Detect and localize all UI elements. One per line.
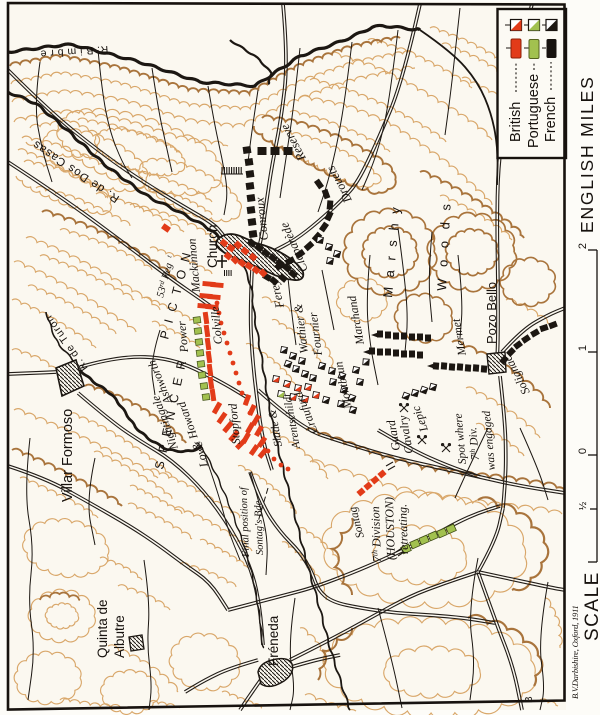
svg-text:Quinta de: Quinta de xyxy=(95,599,110,658)
svg-text:B.V.Darbishire, Oxford, 1911: B.V.Darbishire, Oxford, 1911 xyxy=(570,605,580,699)
svg-text:Portuguese: Portuguese xyxy=(526,74,542,148)
svg-text:Pozo Bello: Pozo Bello xyxy=(484,282,499,344)
svg-text:2: 2 xyxy=(577,243,589,249)
svg-text:French: French xyxy=(543,97,559,142)
svg-text:Fréneda: Fréneda xyxy=(266,615,281,666)
svg-text:Sontag's Bde: Sontag's Bde xyxy=(253,500,266,555)
svg-text:1: 1 xyxy=(577,345,589,351)
svg-text:Church: Church xyxy=(205,224,220,268)
svg-text:Albutre: Albutre xyxy=(112,615,127,658)
svg-text:Power: Power xyxy=(174,320,191,354)
svg-text:Villar Formoso: Villar Formoso xyxy=(60,409,76,502)
svg-text:retreating.: retreating. xyxy=(395,504,411,555)
svg-text:British: British xyxy=(508,102,524,142)
svg-text:½: ½ xyxy=(578,501,589,510)
svg-text:0: 0 xyxy=(577,448,589,454)
svg-text:ENGLISH MILES: ENGLISH MILES xyxy=(577,75,597,233)
svg-text:SCALE: SCALE xyxy=(582,571,600,641)
